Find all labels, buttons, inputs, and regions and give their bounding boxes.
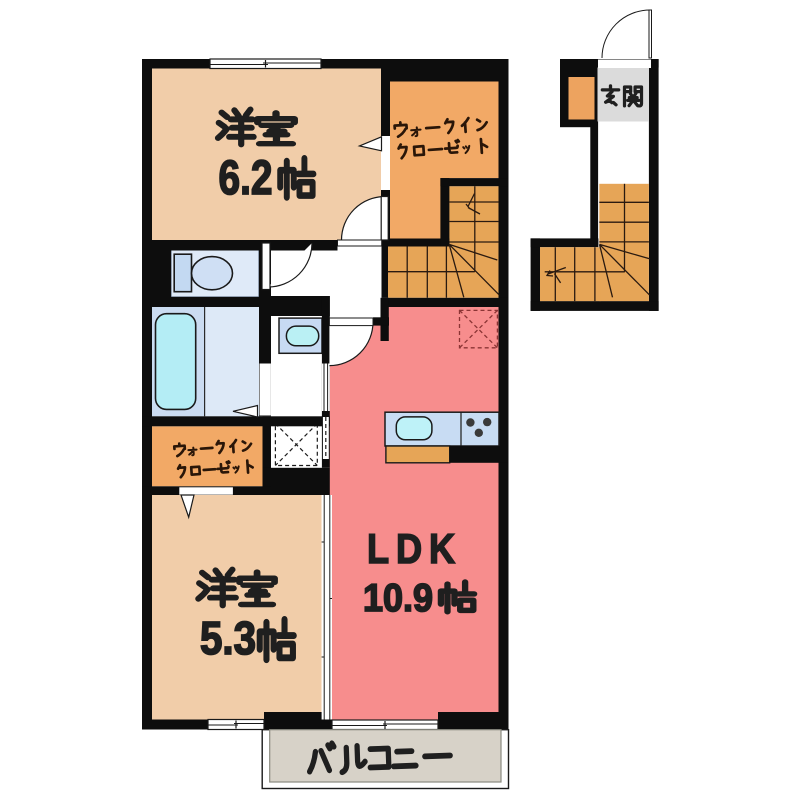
svg-text:6.2: 6.2 [219, 152, 273, 205]
svg-text:5.3: 5.3 [200, 612, 256, 664]
svg-text:LDK: LDK [367, 525, 462, 572]
svg-text:10.9: 10.9 [363, 577, 433, 620]
